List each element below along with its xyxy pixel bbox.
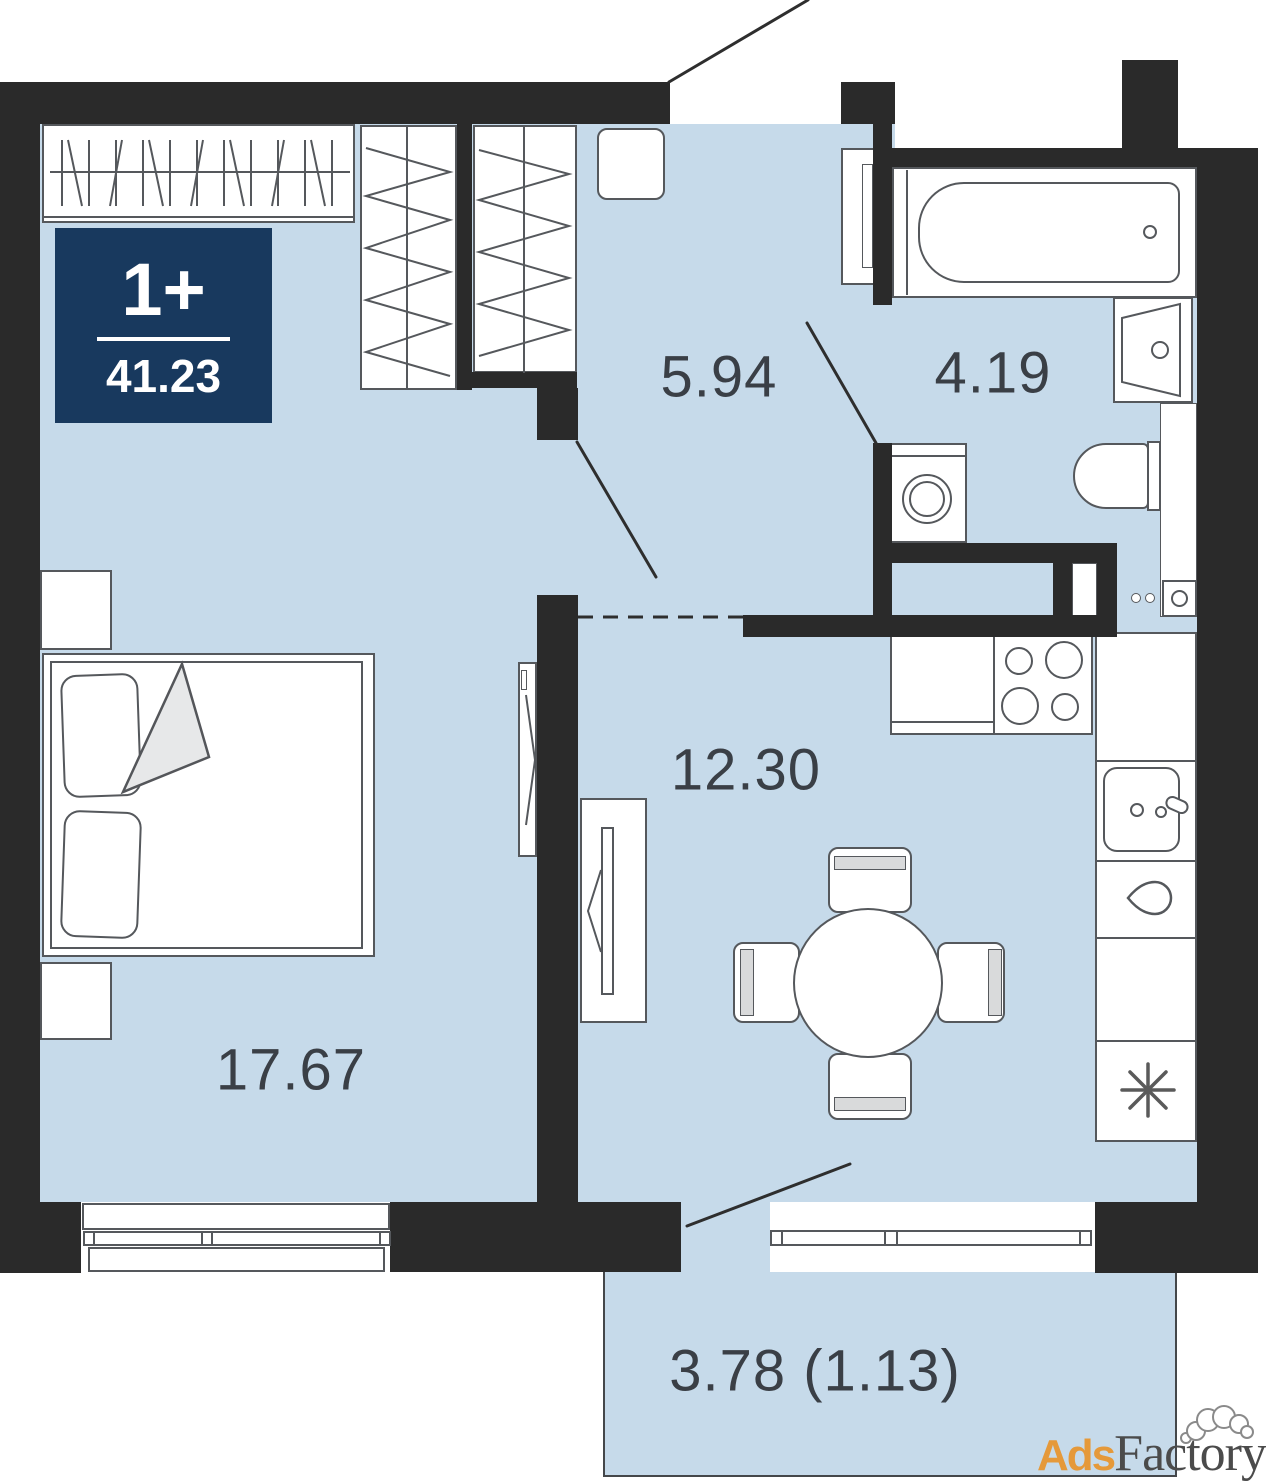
wall-bathroom-left: [873, 124, 892, 305]
room-area-label-hallway: 5.94: [661, 344, 778, 411]
wall-closet-block: [472, 372, 577, 388]
bathtub-drain: [1143, 225, 1157, 239]
wall-bedroom-living: [537, 595, 578, 1202]
kitchen-counter-column: [1095, 632, 1197, 1142]
tv-panel-living: [601, 827, 614, 995]
tv-panel-bedroom-inner: [521, 670, 527, 690]
wall-closet-divider: [457, 122, 472, 390]
balcony-window-cap-right: [1079, 1230, 1092, 1246]
watermark-suffix: Factory: [1114, 1428, 1266, 1480]
badge-divider: [97, 337, 230, 341]
bedroom-window-divider: [201, 1231, 213, 1246]
nightstand-bottom: [40, 962, 112, 1040]
bedroom-window-cap-right: [379, 1231, 391, 1246]
kitchen-counter-shelf-line: [892, 721, 993, 723]
stove-burner-2: [1045, 641, 1083, 679]
wall-niche-div2: [1097, 563, 1117, 615]
room-area-label-bathroom: 4.19: [935, 340, 1052, 407]
stove-burner-1: [1005, 647, 1033, 675]
counter-section-line-3: [1095, 937, 1197, 939]
chair-left-back: [740, 949, 754, 1016]
kitchen-counter-divider: [993, 632, 995, 735]
chair-top-back: [834, 856, 906, 870]
balcony-window-divider: [884, 1230, 898, 1246]
room-area-label-bedroom: 17.67: [216, 1037, 366, 1104]
wall-bottom-right: [1095, 1202, 1197, 1273]
unit-badge: 1+ 41.23: [55, 228, 272, 423]
kitchen-sink-tap-base: [1130, 803, 1144, 817]
vent-dot-1: [1131, 593, 1141, 603]
washing-machine-drum-inner: [909, 481, 945, 517]
hallway-cabinet-inner: [862, 164, 873, 268]
stove-burner-4: [1051, 693, 1079, 721]
wall-bottom-left: [0, 1202, 81, 1273]
stove-burner-3: [1001, 687, 1039, 725]
bathroom-sink: [1113, 297, 1193, 403]
wall-top-stub: [841, 82, 895, 124]
tv-panel-bedroom: [518, 662, 537, 857]
vent-dot-2: [1145, 593, 1155, 603]
wall-right: [1197, 148, 1258, 1273]
wall-niche-top: [873, 543, 1117, 563]
wall-top: [0, 82, 670, 124]
apartment-floorplan: 5.94 4.19 12.30 17.67 3.78 (1.13) 1+ 41.…: [0, 0, 1266, 1482]
entry-door-swing: [669, 0, 808, 82]
wall-niche-div1: [1053, 563, 1072, 615]
room-area-label-living-kitchen: 12.30: [671, 737, 821, 804]
bedroom-window-outer-sill: [88, 1247, 385, 1272]
unit-total-area: 41.23: [106, 353, 221, 399]
room-area-label-balcony: 3.78 (1.13): [669, 1338, 961, 1405]
counter-section-line-2: [1095, 860, 1197, 862]
wall-kitchen-top: [743, 615, 1117, 637]
wall-left: [0, 82, 40, 1273]
bedroom-window-cap-left: [83, 1231, 95, 1246]
unit-type-label: 1+: [121, 253, 205, 327]
nightstand-top: [40, 570, 112, 650]
vent-box-circle: [1171, 590, 1188, 607]
entry-mat: [597, 128, 665, 200]
balcony-window-cap-left: [770, 1230, 783, 1246]
toilet-tank: [1147, 441, 1161, 511]
counter-section-line-1: [1095, 760, 1197, 762]
counter-section-line-4: [1095, 1040, 1197, 1042]
chair-bottom-back: [834, 1097, 906, 1111]
watermark: AdsFactory: [1037, 1428, 1266, 1480]
niche-slot: [1072, 563, 1097, 617]
bedroom-window: [83, 1231, 391, 1246]
pillow-top: [60, 673, 142, 799]
closet-shelves-left: [360, 125, 457, 390]
wall-bedroom-door-jamb: [537, 388, 578, 440]
wall-top-right-stub: [1122, 60, 1178, 148]
balcony-door-opening: [681, 1202, 770, 1273]
wall-bottom-mid: [390, 1202, 681, 1272]
balcony-window: [770, 1230, 1092, 1246]
closet-shelves-right: [473, 125, 577, 373]
bedroom-radiator-sill: [82, 1203, 390, 1230]
watermark-prefix: Ads: [1037, 1434, 1114, 1478]
wall-washer-side: [873, 443, 892, 635]
dining-table: [793, 908, 943, 1058]
pillow-bottom: [60, 810, 142, 940]
bathtub-basin: [918, 182, 1180, 283]
wardrobe-hanging: [42, 124, 355, 223]
toilet-bowl: [1073, 443, 1149, 509]
wall-bathroom-top: [877, 148, 1258, 167]
chair-right-back: [988, 949, 1002, 1016]
